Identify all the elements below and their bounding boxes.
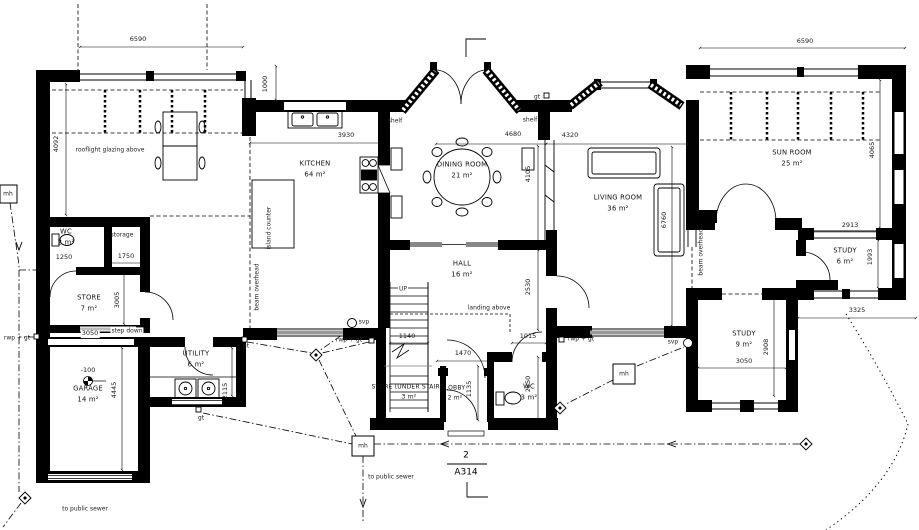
drawing-number: 2: [463, 451, 469, 462]
dim-storage-width: 1750: [118, 253, 135, 261]
note-beam-overhead-right: beam overhead: [697, 228, 704, 275]
dim-wing-top: 6590: [130, 36, 147, 44]
note-sewer-left: to public sewer: [62, 505, 108, 512]
dim-store-width: 3050: [81, 330, 100, 338]
dim-living-width: 4320: [562, 132, 579, 140]
dim-garage-depth: 4445: [111, 382, 119, 399]
dim-study-small-width: 2913: [841, 222, 860, 230]
note-shelf-right: shelf: [523, 116, 537, 123]
room-label-utility: UTILITY6 m²: [183, 349, 210, 368]
note-gt-utility: gt: [198, 414, 204, 421]
garage-level-label: -100: [81, 367, 96, 375]
note-svp-right: svp: [668, 338, 679, 345]
dim-living-depth: 6760: [661, 212, 669, 229]
dim-study-large-width: 3050: [736, 358, 753, 366]
svp-marker: [348, 319, 357, 328]
dim-wing-return: 1000: [262, 76, 270, 93]
drainage-arrows: [16, 242, 676, 507]
dim-wc-center-width: 1015: [520, 333, 537, 341]
note-shelf-left: shelf: [388, 117, 402, 124]
note-beam-overhead-left: beam overhead: [253, 263, 260, 310]
floor-plan-page: { "drawing": { "number": "2", "sheet": "…: [0, 0, 919, 530]
dim-utility-depth: 2115: [222, 383, 230, 400]
note-step-down: step down: [110, 327, 143, 334]
dim-study-large-depth: 2908: [763, 339, 771, 356]
note-mh-left: mh: [3, 190, 13, 197]
inspection-chamber-marker: [800, 438, 812, 450]
note-svp-center: svp: [359, 318, 370, 325]
room-label-study-large: STUDY9 m²: [732, 329, 755, 348]
dim-wing-side: 4092: [53, 136, 61, 153]
dim-stair-width: 1140: [399, 333, 416, 341]
drawing-sheet: A314: [454, 468, 477, 479]
dim-side-offset: 3325: [849, 307, 866, 315]
note-mh-center: mh: [358, 442, 368, 449]
note-gt-center: gt: [243, 342, 249, 349]
room-label-kitchen: KITCHEN64 m²: [300, 159, 331, 178]
room-label-dining: DINING ROOM21 m²: [437, 160, 487, 179]
room-label-hall: HALL16 m²: [451, 259, 472, 278]
dim-sunroom-side: 4065: [869, 142, 877, 159]
note-gt-dining: gt: [534, 93, 540, 100]
room-label-sunroom: SUN ROOM25 m²: [772, 148, 811, 167]
gully-markers: [34, 93, 564, 412]
room-label-store: STORE7 m²: [77, 293, 101, 312]
dim-lobby-depth: 1135: [466, 381, 474, 398]
dim-store-depth: 3005: [114, 292, 122, 309]
dim-dining-depth: 4105: [525, 166, 533, 183]
svp-marker: [684, 339, 693, 348]
note-sewer-center: to public sewer: [368, 473, 414, 480]
dim-dining-width: 4680: [505, 131, 522, 139]
note-mh-right: mh: [619, 370, 629, 377]
room-label-study-small: STUDY6 m²: [833, 246, 856, 265]
note-up: UP: [398, 285, 408, 292]
dim-study-small-depth: 1993: [867, 249, 875, 266]
room-label-living: LIVING ROOM36 m²: [594, 193, 642, 212]
dim-lobby-width: 1470: [455, 350, 472, 358]
note-landing-above: landing above: [468, 304, 511, 311]
note-rwp-gt-right: rwp + gt: [568, 335, 594, 342]
note-rooflight: rooflight glazing above: [76, 146, 145, 153]
note-rwp-gt-center: rwp + gt: [336, 336, 362, 343]
note-island-counter: island counter: [265, 207, 272, 250]
inspection-chamber-marker: [19, 492, 31, 504]
room-label-wc-left: WC2 m²: [58, 227, 75, 246]
dim-kitchen-width: 3930: [338, 132, 355, 140]
room-label-lobby: LOBBY2 m²: [445, 384, 465, 401]
room-label-garage: GARAGE14 m²: [73, 384, 103, 403]
dim-wc-left-width: 1250: [56, 254, 73, 262]
dim-sunroom-top: 6590: [797, 38, 814, 46]
room-label-storage: storage: [111, 231, 134, 238]
dim-wc-center-depth: 2850: [525, 376, 533, 393]
inspection-chamber-marker: [310, 349, 322, 361]
room-label-store-under-stairs: STORE (UNDER STAIRS)3 m²: [372, 383, 447, 400]
dim-hall-depth: 2530: [525, 279, 533, 296]
note-rwp-gt-left: rwp + gt: [4, 334, 30, 341]
